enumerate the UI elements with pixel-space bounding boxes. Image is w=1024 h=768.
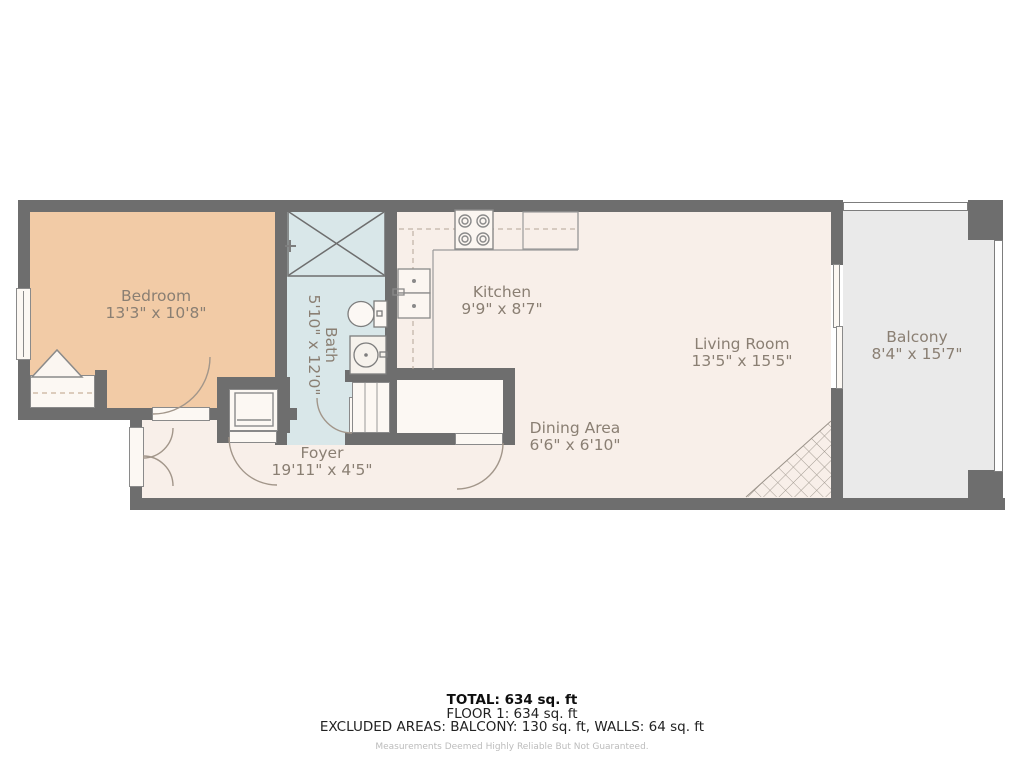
balcony-dims: 8'4" x 15'7" [871,346,962,363]
foyer-dims: 19'11" x 4'5" [272,462,373,479]
balcony-corner-top-right [968,200,1003,240]
dining-closet-door-leaf [455,433,503,445]
dining-closet-top [385,368,515,380]
washer-closet-interior [229,389,278,431]
wall-closet-right [95,370,107,408]
living-room-dims: 13'5" x 15'5" [692,353,793,370]
dining-area-name: Dining Area [529,420,620,437]
washer-closet-door-leaf [229,431,277,443]
excluded-areas-text: EXCLUDED AREAS: BALCONY: 130 sq. ft, WAL… [320,721,704,734]
bedroom-label: Bedroom 13'3" x 10'8" [106,288,207,322]
kitchen-label: Kitchen 9'9" x 8'7" [461,284,542,318]
disclaimer-text: Measurements Deemed Highly Reliable But … [375,742,648,752]
balcony-name: Balcony [871,329,962,346]
wall-bottom [130,498,1005,510]
dining-area-dims: 6'6" x 6'10" [529,437,620,454]
sliding-door-panel-1 [833,264,840,328]
bedroom-closet-interior [30,375,95,408]
foyer-label: Foyer 19'11" x 4'5" [272,445,373,479]
living-room-name: Living Room [692,336,793,353]
wall-top [18,200,843,212]
bedroom-name: Bedroom [106,288,207,305]
dining-closet-interior [397,380,503,433]
balcony-label: Balcony 8'4" x 15'7" [871,329,962,363]
bath-shelf-closet [352,382,390,433]
wall-bath-kitchen [385,200,397,382]
entry-door-leaves [129,427,144,487]
foyer-name: Foyer [272,445,373,462]
floor-plan: Bedroom 13'3" x 10'8" Bath 5'10" x 12'0"… [0,0,1024,768]
bedroom-door-leaf [152,407,210,421]
kitchen-dims: 9'9" x 8'7" [461,301,542,318]
bath-dims: 5'10" x 12'0" [305,295,322,396]
balcony-railing-top [843,202,968,211]
living-room-label: Living Room 13'5" x 15'5" [692,336,793,370]
bath-name: Bath [322,295,339,396]
balcony-railing-right [994,240,1003,472]
dining-area-label: Dining Area 6'6" x 6'10" [529,420,620,454]
bedroom-dims: 13'3" x 10'8" [106,305,207,322]
sliding-door-panel-2 [836,326,843,389]
bath-label: Bath 5'10" x 12'0" [305,295,339,396]
kitchen-name: Kitchen [461,284,542,301]
wall-balcony-left-top [831,212,843,265]
bedroom-window [16,288,31,360]
wall-balcony-left-bottom [831,388,843,498]
balcony-corner-bottom-right [968,470,1003,498]
